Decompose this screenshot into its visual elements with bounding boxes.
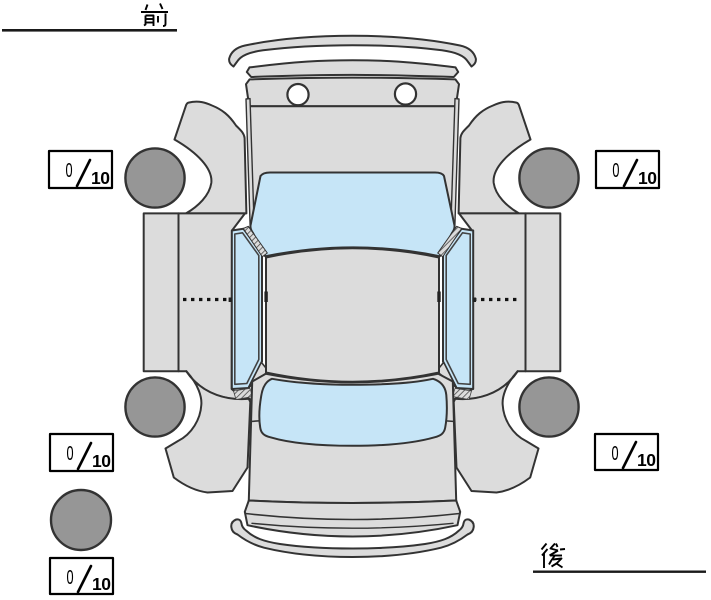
svg-text:0: 0	[66, 566, 73, 589]
svg-text:0: 0	[612, 159, 619, 182]
svg-text:10: 10	[91, 168, 110, 188]
svg-text:10: 10	[92, 451, 111, 471]
svg-text:10: 10	[92, 574, 111, 594]
svg-text:10: 10	[637, 450, 656, 470]
svg-text:0: 0	[65, 159, 72, 182]
svg-text:0: 0	[611, 442, 618, 465]
svg-text:0: 0	[66, 442, 73, 465]
svg-text:10: 10	[638, 168, 657, 188]
